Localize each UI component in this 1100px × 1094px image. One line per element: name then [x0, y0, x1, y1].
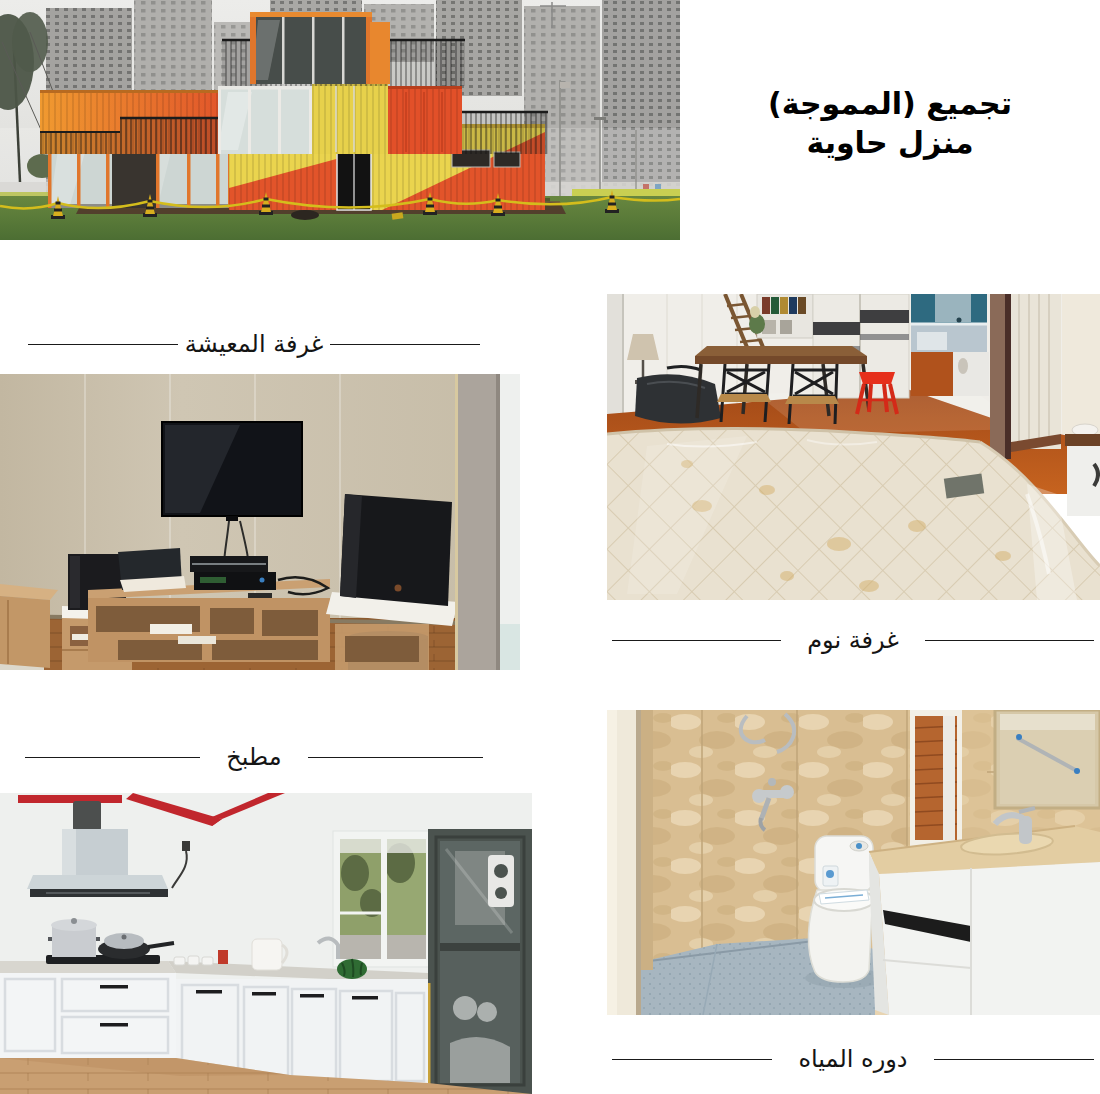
- divider-line: [925, 640, 1094, 641]
- section-label-bathroom: دوره المياه: [612, 1042, 1094, 1076]
- page-title-line1: تجميع (المموجة): [690, 84, 1090, 123]
- section-label-text: مطبخ: [226, 743, 281, 771]
- page-title-line2: منزل حاوية: [690, 123, 1090, 162]
- kitchen-photo: [0, 793, 532, 1094]
- doorway: [990, 294, 1061, 459]
- divider-line: [330, 344, 480, 345]
- divider-line: [25, 757, 200, 758]
- divider-line: [612, 640, 781, 641]
- section-label-kitchen: مطبخ: [25, 740, 483, 774]
- bookshelf: [749, 294, 813, 338]
- door-frame: [607, 710, 653, 1015]
- window: [910, 710, 962, 846]
- door-frame: [455, 374, 520, 670]
- divider-line: [308, 757, 483, 758]
- divider-line: [612, 1059, 772, 1060]
- page: تجميع (المموجة) منزل حاوية غرفة المعيشة: [0, 0, 1100, 1094]
- section-label-text: غرفة نوم: [807, 626, 899, 654]
- display-cabinet-fridge: [428, 829, 532, 1094]
- bathroom-photo: [607, 710, 1100, 1015]
- page-title: تجميع (المموجة) منزل حاوية: [690, 84, 1090, 162]
- section-label-bedroom: غرفة نوم: [612, 623, 1094, 657]
- living-room-photo: [0, 374, 520, 670]
- section-label-text: دوره المياه: [798, 1045, 907, 1073]
- bedroom-photo: [607, 294, 1100, 600]
- divider-line: [28, 344, 178, 345]
- hero-photo-container-house: [0, 0, 680, 240]
- section-label-text: غرفة المعيشة: [185, 330, 324, 358]
- right-cabinet: [1062, 294, 1100, 516]
- section-label-living-room: غرفة المعيشة: [28, 327, 480, 361]
- window: [333, 831, 432, 967]
- kitchenette: [911, 294, 989, 396]
- side-table: [0, 584, 58, 670]
- divider-line: [934, 1059, 1094, 1060]
- mirror: [995, 710, 1100, 808]
